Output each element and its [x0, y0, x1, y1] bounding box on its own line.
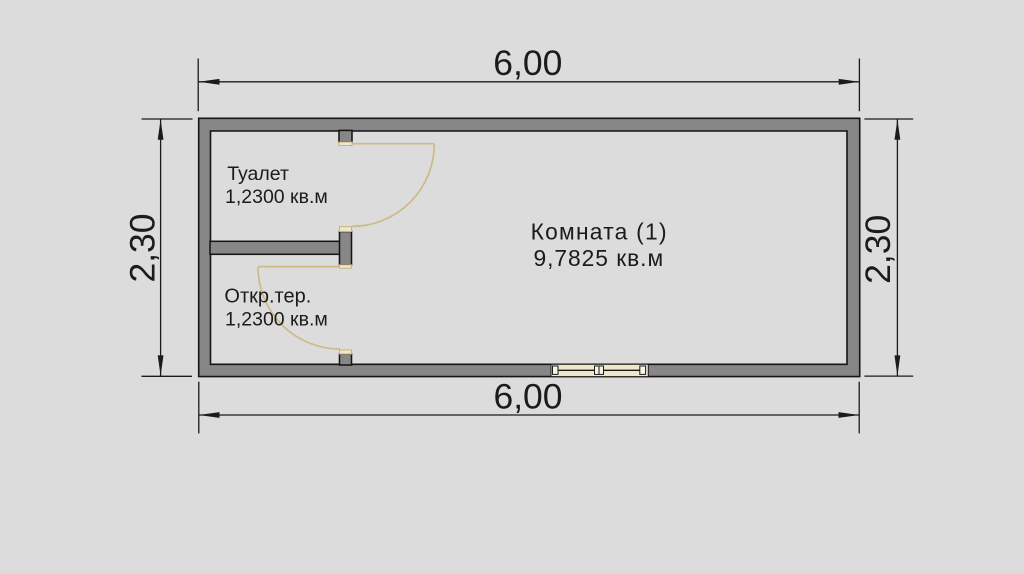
- svg-text:Туалет: Туалет: [227, 163, 289, 185]
- svg-text:6,00: 6,00: [493, 377, 562, 417]
- svg-text:1,2300 кв.м: 1,2300 кв.м: [225, 186, 328, 208]
- svg-text:2,30: 2,30: [122, 213, 162, 282]
- svg-text:9,7825 кв.м: 9,7825 кв.м: [533, 245, 664, 271]
- svg-text:Откр.тер.: Откр.тер.: [224, 286, 311, 308]
- svg-text:2,30: 2,30: [858, 215, 898, 284]
- svg-text:1,2300 кв.м: 1,2300 кв.м: [225, 308, 328, 330]
- svg-text:Комната (1): Комната (1): [531, 219, 668, 245]
- svg-text:6,00: 6,00: [493, 43, 562, 83]
